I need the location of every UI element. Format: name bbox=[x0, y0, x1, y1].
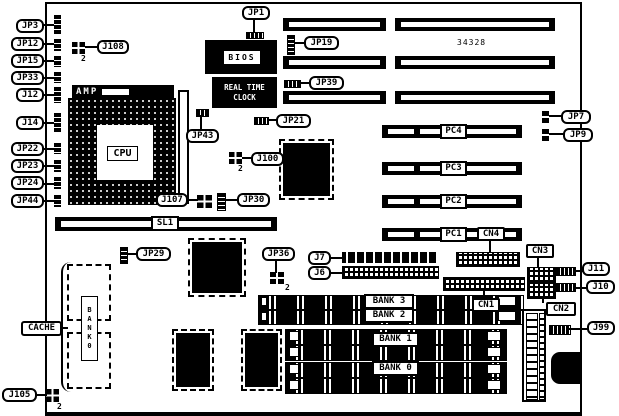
jumper-jp1 bbox=[246, 32, 264, 39]
bios-label: BIOS bbox=[228, 53, 255, 62]
pin2-j105: 2 bbox=[57, 403, 62, 411]
label-j6: J6 bbox=[308, 266, 331, 280]
jumper-jp7 bbox=[542, 111, 549, 123]
label-cache: CACHE bbox=[21, 321, 62, 336]
bank2-label-box: BANK 2 bbox=[364, 308, 414, 323]
label-j10: J10 bbox=[586, 280, 615, 294]
label-cn2: CN2 bbox=[546, 302, 576, 316]
jumper-jp19 bbox=[287, 35, 295, 55]
pc1-label-box: PC1 bbox=[440, 227, 467, 242]
motherboard-diagram: JP3 JP12 JP15 JP33 J12 J14 JP22 JP23 JP2… bbox=[0, 0, 619, 416]
pc1-label: PC1 bbox=[445, 230, 461, 239]
rtc-label-line2: CLOCK bbox=[233, 93, 256, 103]
pc2-label: PC2 bbox=[445, 197, 461, 206]
bank3-label: BANK 3 bbox=[373, 297, 406, 306]
sl1-label-box: SL1 bbox=[151, 216, 179, 231]
pc3-label-box: PC3 bbox=[440, 161, 467, 176]
cache-bank-vertical-label: BANK0 bbox=[86, 306, 94, 351]
rtc-label-line1: REAL TIME bbox=[224, 83, 265, 93]
jumper-j100 bbox=[229, 152, 242, 164]
logic-chip-right bbox=[245, 333, 278, 387]
label-jp15: JP15 bbox=[11, 54, 44, 68]
label-jp9: JP9 bbox=[563, 128, 593, 142]
amp-logo-bar: AMP bbox=[72, 85, 174, 98]
jumper-jp30 bbox=[217, 193, 226, 211]
jumper-jp36 bbox=[270, 272, 284, 284]
label-jp7: JP7 bbox=[561, 110, 591, 124]
label-j100: J100 bbox=[251, 152, 284, 166]
jumper-j105 bbox=[46, 389, 59, 402]
power-connector bbox=[522, 309, 546, 402]
pc4-label: PC4 bbox=[445, 127, 461, 136]
rtc-chip: REAL TIME CLOCK bbox=[212, 77, 277, 108]
label-jp30: JP30 bbox=[237, 193, 270, 207]
jumper-strip-jp44 bbox=[54, 195, 61, 207]
label-jp12: JP12 bbox=[11, 37, 44, 51]
cache-bank-vertical-box: BANK0 bbox=[81, 296, 98, 361]
jumper-strip-j14 bbox=[54, 113, 61, 132]
sl1-label: SL1 bbox=[157, 219, 173, 228]
label-jp24: JP24 bbox=[11, 176, 44, 190]
jumper-strip-jp33 bbox=[54, 72, 61, 83]
label-j105: J105 bbox=[2, 388, 37, 402]
logic-chip-left bbox=[176, 333, 210, 387]
label-cn1: CN1 bbox=[472, 298, 500, 312]
bank1-label: BANK 1 bbox=[379, 335, 412, 344]
bank2-label: BANK 2 bbox=[373, 311, 406, 320]
cpu-label: CPU bbox=[113, 148, 131, 159]
label-jp19: JP19 bbox=[304, 36, 339, 50]
label-jp1: JP1 bbox=[242, 6, 270, 20]
label-jp23: JP23 bbox=[11, 159, 44, 173]
amp-label: AMP bbox=[72, 87, 98, 97]
jumper-strip-jp22 bbox=[54, 143, 61, 154]
bank0-label-box: BANK 0 bbox=[372, 361, 419, 376]
pc2-label-box: PC2 bbox=[440, 194, 467, 209]
zif-lever bbox=[178, 90, 189, 204]
amp-logo-mark bbox=[102, 89, 129, 95]
simm-row-bank1b bbox=[285, 345, 507, 361]
keyboard-din-connector bbox=[551, 352, 581, 384]
label-j99: J99 bbox=[587, 321, 615, 335]
label-jp36: JP36 bbox=[262, 247, 295, 261]
jumper-strip-jp23 bbox=[54, 160, 61, 172]
pc4-label-box: PC4 bbox=[440, 124, 467, 139]
label-jp22: JP22 bbox=[11, 142, 44, 156]
pin2-j100: 2 bbox=[238, 165, 243, 173]
jumper-strip-jp3 bbox=[54, 15, 61, 35]
jumper-strip-jp15 bbox=[54, 56, 61, 67]
connector-cn4 bbox=[456, 252, 520, 267]
jumper-j99 bbox=[549, 325, 571, 335]
pc3-label: PC3 bbox=[445, 164, 461, 173]
label-jp44: JP44 bbox=[11, 194, 44, 208]
label-cn3: CN3 bbox=[526, 244, 554, 258]
pin2-jp36: 2 bbox=[285, 284, 290, 292]
label-jp29: JP29 bbox=[136, 247, 171, 261]
label-jp3: JP3 bbox=[16, 19, 44, 33]
label-j107: J107 bbox=[156, 193, 188, 207]
jumper-strip-j12 bbox=[54, 87, 61, 103]
bank0-label: BANK 0 bbox=[379, 364, 412, 373]
label-cn4: CN4 bbox=[477, 227, 505, 241]
jumper-jp9 bbox=[542, 129, 549, 141]
label-jp43: JP43 bbox=[186, 129, 219, 143]
simm-row-bank0b bbox=[285, 378, 507, 394]
jumper-strip-jp12 bbox=[54, 39, 61, 51]
chipset-north bbox=[283, 143, 330, 196]
bank1-label-box: BANK 1 bbox=[372, 332, 419, 347]
jumper-j107 bbox=[197, 195, 212, 208]
label-jp33: JP33 bbox=[11, 71, 44, 85]
label-jp21: JP21 bbox=[276, 114, 311, 128]
connector-cn3 bbox=[527, 267, 556, 283]
jumper-j108 bbox=[72, 42, 85, 54]
label-j11: J11 bbox=[582, 262, 610, 276]
chipset-south bbox=[192, 242, 242, 293]
connector-j6 bbox=[342, 266, 439, 279]
label-j12: J12 bbox=[16, 88, 44, 102]
jumper-jp43 bbox=[196, 109, 209, 117]
label-j14: J14 bbox=[16, 116, 44, 130]
label-jp39: JP39 bbox=[309, 76, 344, 90]
cpu-label-box: CPU bbox=[107, 146, 138, 161]
bank3-label-box: BANK 3 bbox=[364, 294, 414, 309]
jumper-jp29 bbox=[120, 247, 128, 264]
connector-j7 bbox=[342, 252, 437, 263]
pin2-j108: 2 bbox=[81, 55, 86, 63]
jumper-strip-jp24 bbox=[54, 177, 61, 189]
part-number: 34328 bbox=[457, 38, 486, 47]
label-j7: J7 bbox=[308, 251, 331, 265]
label-j108: J108 bbox=[97, 40, 129, 54]
bios-label-box: BIOS bbox=[224, 51, 260, 64]
